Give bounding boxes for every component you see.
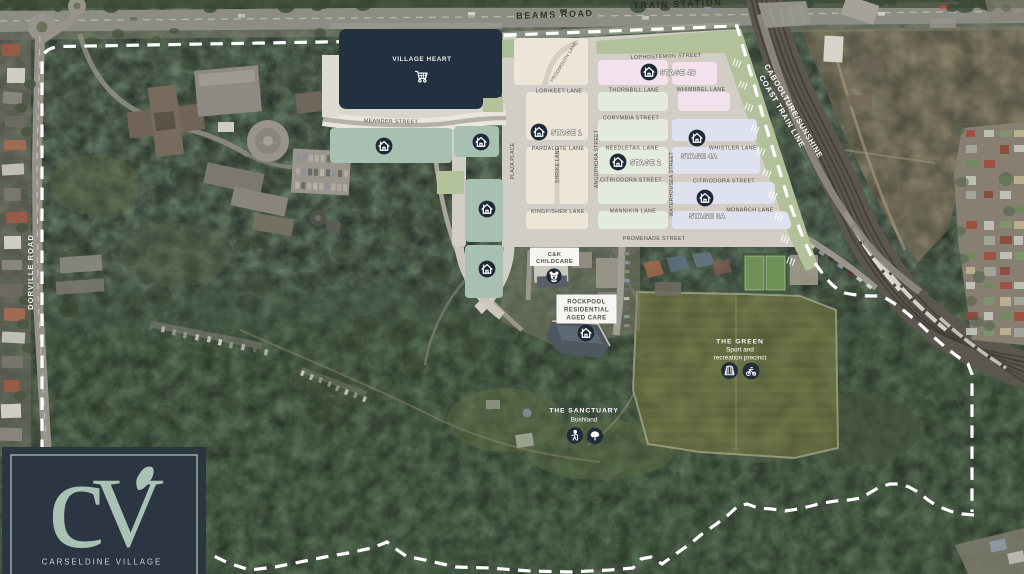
svg-text:STAGE 1: STAGE 1 (551, 130, 582, 137)
svg-text:recreation precinct: recreation precinct (714, 355, 767, 362)
svg-text:Bushland: Bushland (571, 417, 598, 424)
svg-text:MANNIKIN LANE: MANNIKIN LANE (610, 208, 656, 214)
svg-text:AGED CARE: AGED CARE (566, 315, 606, 322)
svg-text:PLAZA PLACE: PLAZA PLACE (510, 142, 516, 179)
svg-text:CHILDCARE: CHILDCARE (536, 259, 573, 265)
svg-text:STAGE 4A: STAGE 4A (681, 154, 717, 161)
svg-text:DORVILLE ROAD: DORVILLE ROAD (26, 234, 35, 310)
svg-text:CITRIODORA STREET: CITRIODORA STREET (600, 178, 662, 184)
svg-text:SHRIKE LANE: SHRIKE LANE (555, 146, 561, 183)
svg-text:PROMENADE STREET: PROMENADE STREET (623, 236, 686, 242)
svg-text:ANGOPHORA STREET: ANGOPHORA STREET (594, 130, 600, 188)
svg-text:MONARCH LANE: MONARCH LANE (726, 208, 774, 214)
svg-text:WHISTLER LANE: WHISTLER LANE (709, 145, 757, 151)
svg-text:LORIKEET LANE: LORIKEET LANE (536, 88, 583, 94)
svg-text:CARSELDINE VILLAGE: CARSELDINE VILLAGE (42, 558, 163, 567)
svg-text:Sport and: Sport and (726, 347, 754, 354)
svg-text:VILLAGE HEART: VILLAGE HEART (392, 56, 451, 63)
svg-text:KINGFISHER LANE: KINGFISHER LANE (531, 209, 585, 215)
svg-text:ROCKPOOL: ROCKPOOL (567, 299, 605, 306)
svg-text:CORYMBIA STREET: CORYMBIA STREET (603, 115, 660, 121)
svg-text:THORNBILL LANE: THORNBILL LANE (609, 88, 660, 94)
svg-text:THE GREEN: THE GREEN (716, 339, 764, 346)
svg-text:STAGE 4B: STAGE 4B (660, 70, 696, 77)
svg-text:STAGE 3A: STAGE 3A (689, 214, 725, 221)
svg-text:CITRIODORA STREET: CITRIODORA STREET (693, 178, 755, 184)
svg-text:WHIMBREL LANE: WHIMBREL LANE (677, 87, 726, 93)
svg-text:THE SANCTUARY: THE SANCTUARY (549, 408, 619, 415)
svg-text:C&K: C&K (548, 252, 562, 258)
svg-text:WATERHOUSEA STREET: WATERHOUSEA STREET (669, 152, 675, 217)
svg-text:STAGE 2: STAGE 2 (630, 160, 661, 167)
svg-text:NEEDLETAIL LANE: NEEDLETAIL LANE (605, 145, 658, 151)
svg-text:RESIDENTIAL: RESIDENTIAL (564, 307, 609, 314)
